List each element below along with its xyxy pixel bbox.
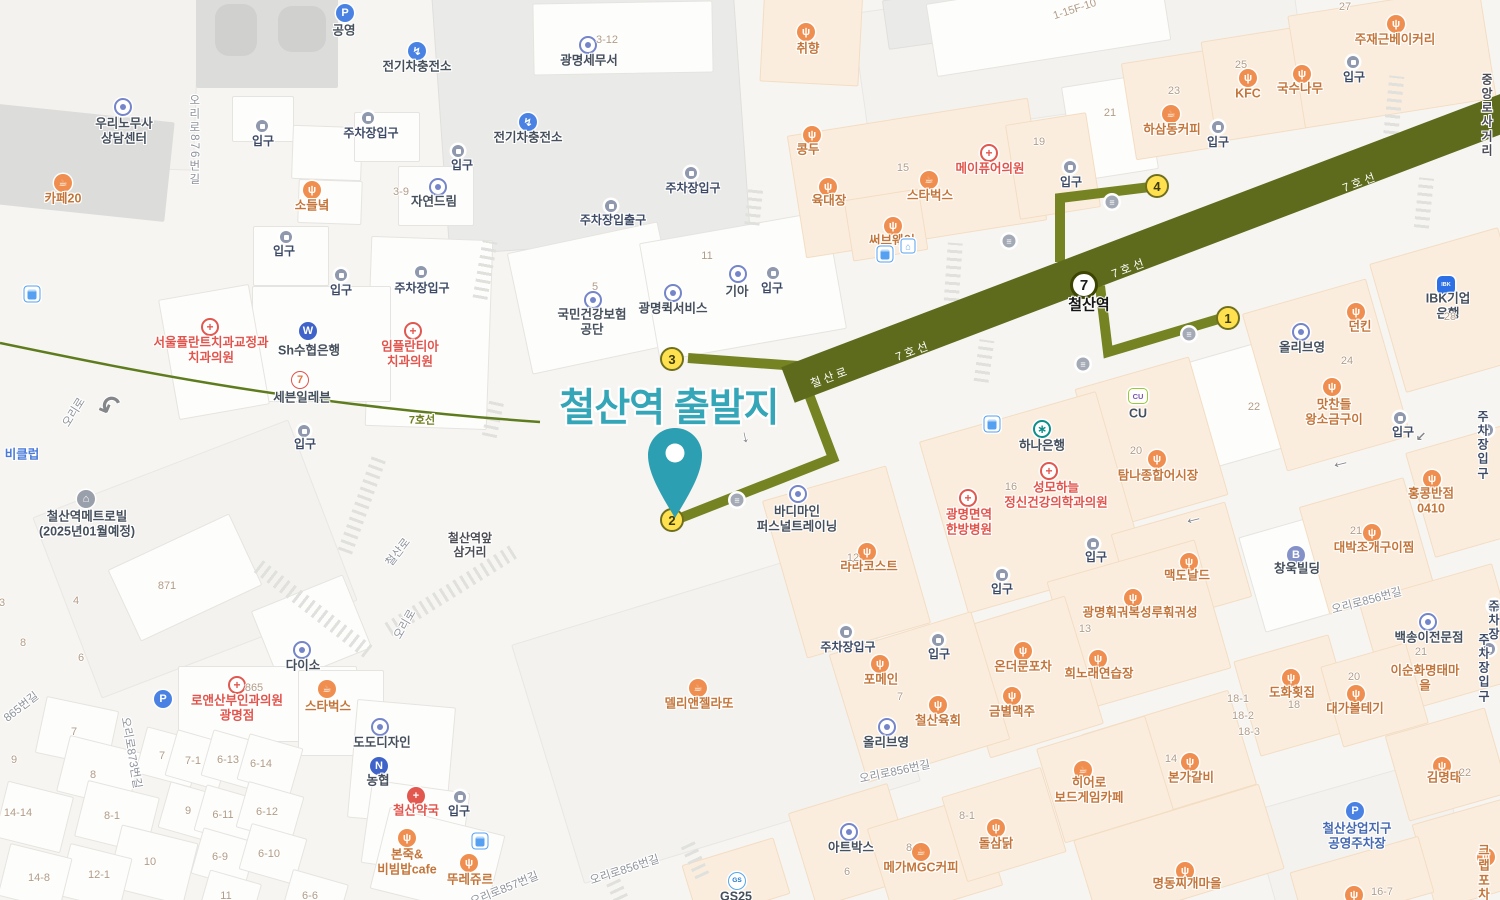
food-icon[interactable]: ψ bbox=[1148, 450, 1166, 468]
entrance-label: 입구 bbox=[294, 437, 316, 451]
poi-label[interactable]: 전기차충전소 bbox=[382, 60, 451, 75]
lot-number: 16-7 bbox=[1371, 886, 1393, 898]
poi-label[interactable]: 광명훠궈복성루훠궈성 bbox=[1082, 606, 1197, 621]
lot-number: 14-8 bbox=[28, 872, 50, 884]
med-icon[interactable]: + bbox=[1040, 462, 1058, 480]
building bbox=[215, 4, 257, 56]
poi-label[interactable]: GS25 bbox=[720, 890, 752, 900]
line7-band-label: 7호선 bbox=[1340, 168, 1380, 196]
store-icon[interactable] bbox=[1419, 613, 1437, 631]
entrance-label: 주차장입구 bbox=[1475, 410, 1492, 481]
park-icon[interactable]: P bbox=[1346, 802, 1364, 820]
lot-number: 7 bbox=[159, 750, 165, 762]
lot-number: 11 bbox=[701, 250, 712, 262]
poi-label[interactable]: 금별맥주 bbox=[989, 705, 1035, 720]
lot-number: 6-10 bbox=[258, 848, 280, 860]
bank-icon[interactable]: N bbox=[370, 757, 388, 775]
cafe-icon[interactable]: ☕ bbox=[1162, 105, 1180, 123]
med-icon[interactable]: + bbox=[980, 144, 998, 162]
entrance-icon bbox=[1063, 160, 1077, 174]
poi-label[interactable]: 던킨 bbox=[1348, 320, 1371, 335]
lot-number: 9 bbox=[185, 805, 191, 817]
gs-icon[interactable]: GS bbox=[728, 872, 746, 890]
hana-icon[interactable]: ∗ bbox=[1033, 420, 1051, 438]
lot-number: 28 bbox=[1444, 311, 1456, 323]
lot-number: 21 bbox=[1415, 646, 1427, 658]
food-icon[interactable]: ψ bbox=[1282, 669, 1300, 687]
building bbox=[278, 6, 326, 52]
food-icon[interactable]: ψ bbox=[303, 181, 321, 199]
poi-label[interactable]: 광명세무서 bbox=[560, 54, 618, 69]
entrance-label: 입구 bbox=[1085, 550, 1107, 564]
poi-label[interactable]: 포메인 bbox=[864, 673, 899, 688]
entrance-icon bbox=[766, 266, 780, 280]
poi-label[interactable]: 카페20 bbox=[45, 192, 82, 207]
poi-label[interactable]: 메이퓨어의원 bbox=[955, 162, 1024, 177]
food-icon[interactable]: ψ bbox=[1345, 886, 1363, 900]
entrance-icon bbox=[279, 230, 293, 244]
lot-number: 18 bbox=[1288, 699, 1300, 711]
med-icon[interactable]: + bbox=[404, 322, 422, 340]
poi-label[interactable]: 자연드림 bbox=[411, 195, 457, 210]
food-icon[interactable]: ψ bbox=[1181, 753, 1199, 771]
entrance-icon bbox=[361, 111, 375, 125]
line7-exit-branch bbox=[688, 358, 798, 366]
bus-stop-icon[interactable] bbox=[24, 286, 41, 303]
poi-label[interactable]: 홍콩반점 0410 bbox=[1408, 486, 1454, 516]
lot-number: 25 bbox=[1235, 59, 1247, 71]
poi-label[interactable]: 크랩포차 bbox=[1476, 844, 1492, 900]
lot-number: 8 bbox=[906, 842, 912, 854]
poi-label[interactable]: KFC bbox=[1235, 87, 1261, 102]
crosswalk bbox=[744, 184, 763, 225]
entrance-label: 입구 bbox=[991, 582, 1013, 596]
entrance-label: 주차장 bbox=[1488, 599, 1499, 641]
entrance-label: 입구 bbox=[273, 244, 295, 258]
poi-label[interactable]: 희노래연습장 bbox=[1064, 667, 1133, 682]
store-icon[interactable] bbox=[293, 641, 311, 659]
entrance-icon bbox=[1393, 411, 1407, 425]
lot-number: 6 bbox=[844, 866, 850, 878]
food-icon[interactable]: ψ bbox=[1124, 589, 1142, 607]
lot-number: 6-14 bbox=[250, 758, 272, 770]
poi-label[interactable]: 도도디자인 bbox=[353, 736, 411, 751]
cafe-icon[interactable]: ☕ bbox=[689, 679, 707, 697]
entrance-icon bbox=[1086, 537, 1100, 551]
cafe-icon[interactable]: ☕ bbox=[54, 174, 72, 192]
food-icon[interactable]: ψ bbox=[1014, 642, 1032, 660]
med-icon[interactable]: + bbox=[201, 318, 219, 336]
lot-number: 21 bbox=[1104, 107, 1116, 119]
subway-exit-2[interactable]: 2 bbox=[660, 508, 684, 532]
food-icon[interactable]: ψ bbox=[1089, 650, 1107, 668]
poi-label[interactable]: 스타벅스 bbox=[305, 700, 351, 715]
poi-label[interactable]: 성모하늘 정신건강의학과의원 bbox=[1004, 480, 1108, 510]
lot-number: 3-9 bbox=[393, 186, 409, 198]
lot-number: 6-12 bbox=[256, 806, 278, 818]
food-icon[interactable]: ψ bbox=[1003, 687, 1021, 705]
poi-label[interactable]: 철산상업지구 공영주차장 bbox=[1322, 821, 1391, 851]
poi-label[interactable]: 서울플란트치과교정과 치과의원 bbox=[153, 335, 268, 365]
entrance-label: 입구 bbox=[451, 158, 473, 172]
lot-number: 871 bbox=[158, 580, 176, 592]
cafe-icon[interactable]: ☕ bbox=[920, 171, 938, 189]
park-icon[interactable]: P bbox=[336, 4, 354, 22]
poi-label[interactable]: 우리노무사 상담센터 bbox=[95, 116, 153, 146]
poi-label[interactable]: 철산역메트로빌 (2025년01월예정) bbox=[39, 509, 135, 539]
lodge-icon[interactable]: ⌂ bbox=[901, 239, 916, 254]
poi-label[interactable]: 명동찌개마을 bbox=[1152, 877, 1221, 892]
entrance-icon bbox=[451, 144, 465, 158]
ev-icon[interactable]: ↯ bbox=[408, 42, 426, 60]
food-icon[interactable]: ψ bbox=[1347, 685, 1365, 703]
direction-arrow-icon: ↙ bbox=[1416, 429, 1427, 445]
lot-number: 14 bbox=[1165, 753, 1177, 765]
poi-label[interactable]: 창욱빌딩 bbox=[1274, 562, 1320, 577]
poi-label[interactable]: 철산육회 bbox=[915, 714, 961, 729]
entrance-label: 주차장입구 bbox=[394, 281, 449, 295]
lot-number: 16 bbox=[1005, 481, 1017, 493]
entrance-label: 입구 bbox=[448, 804, 470, 818]
lot-number: 7-1 bbox=[185, 755, 201, 767]
poi-label[interactable]: 백송이전문점 bbox=[1394, 631, 1463, 646]
lot-number: 20 bbox=[1348, 671, 1360, 683]
food-icon[interactable]: ψ bbox=[1323, 378, 1341, 396]
bus-stop-icon[interactable] bbox=[877, 246, 894, 263]
food-icon[interactable]: ψ bbox=[797, 23, 815, 41]
lot-number: 11 bbox=[220, 890, 231, 900]
street-label: 오리로 bbox=[61, 396, 89, 430]
street-label: 오리로876번길 bbox=[186, 94, 200, 187]
food-icon[interactable]: ψ bbox=[871, 655, 889, 673]
poi-label[interactable]: 콩두 bbox=[796, 143, 819, 158]
poi-label[interactable]: 대가볼테기 bbox=[1326, 702, 1384, 717]
poi-label[interactable]: 올리브영 bbox=[1279, 341, 1325, 356]
store-icon[interactable] bbox=[878, 718, 896, 736]
lot-number: 22 bbox=[1459, 767, 1471, 779]
line7-band-label: 7호선 bbox=[1109, 254, 1149, 282]
poi-label[interactable]: CU bbox=[1129, 407, 1147, 422]
entrance-icon bbox=[839, 625, 853, 639]
poi-label[interactable]: 기아 bbox=[725, 285, 748, 300]
poi-label[interactable]: 탐나종합어시장 bbox=[1118, 469, 1199, 484]
store-icon[interactable] bbox=[371, 718, 389, 736]
poi-label[interactable]: Sh수협은행 bbox=[278, 344, 340, 359]
food-icon[interactable]: ψ bbox=[1387, 15, 1405, 33]
subway-entrance-stairs-icon: ≡ bbox=[1105, 195, 1120, 210]
lot-number: 865 bbox=[245, 682, 263, 694]
entrance-icon bbox=[255, 119, 269, 133]
crosswalk bbox=[1414, 177, 1434, 228]
entrance-icon bbox=[1211, 120, 1225, 134]
food-icon[interactable]: ψ bbox=[858, 543, 876, 561]
poi-label[interactable]: 전기차충전소 bbox=[493, 131, 562, 146]
food-icon[interactable]: ψ bbox=[460, 854, 478, 872]
poi-label[interactable]: 델리앤젤라또 bbox=[664, 697, 733, 712]
lot-number: 23 bbox=[1168, 85, 1180, 97]
poi-label[interactable]: 본죽& 비빔밥cafe bbox=[377, 847, 437, 877]
med-icon[interactable]: + bbox=[959, 489, 977, 507]
poi-label[interactable]: 육대장 bbox=[812, 194, 847, 209]
store-icon[interactable] bbox=[664, 284, 682, 302]
lot-number: 18-2 bbox=[1232, 710, 1254, 722]
entrance-label: 입구 bbox=[1392, 425, 1414, 439]
subway-exit-4[interactable]: 4 bbox=[1145, 174, 1169, 198]
poi-label[interactable]: 온더문포차 bbox=[994, 660, 1052, 675]
crosswalk bbox=[943, 243, 963, 310]
poi-label[interactable]: 주재근베이커리 bbox=[1355, 33, 1436, 48]
street-label: 7호선 bbox=[409, 415, 435, 428]
lot-number: 3-12 bbox=[596, 34, 618, 46]
store-icon[interactable] bbox=[1292, 323, 1310, 341]
lot-number: 6-13 bbox=[217, 754, 239, 766]
poi-label[interactable]: 광명면역 한방병원 bbox=[946, 507, 992, 537]
lot-number: 18-3 bbox=[1238, 726, 1260, 738]
poi-label[interactable]: 뚜레쥬르 bbox=[447, 873, 493, 888]
poi-label[interactable]: 로앤산부인과의원 광명점 bbox=[191, 693, 283, 723]
entrance-label: 주차장입구 bbox=[820, 640, 875, 654]
departure-title: 철산역 출발지 bbox=[559, 377, 778, 433]
poi-label[interactable]: 하나은행 bbox=[1019, 439, 1065, 454]
food-icon[interactable]: ψ bbox=[884, 217, 902, 235]
bank-icon[interactable]: W bbox=[299, 322, 317, 340]
subway-entrance-stairs-icon: ≡ bbox=[730, 493, 745, 508]
store-icon[interactable] bbox=[429, 178, 447, 196]
poi-label[interactable]: 아트박스 bbox=[828, 841, 874, 856]
entrance-icon bbox=[604, 199, 618, 213]
poi-label[interactable]: 비클럽 bbox=[5, 448, 40, 463]
store-icon[interactable] bbox=[579, 36, 597, 54]
ev-icon[interactable]: ↯ bbox=[519, 113, 537, 131]
poi-label[interactable]: 공영 bbox=[332, 24, 355, 39]
lot-number: 13 bbox=[1079, 623, 1091, 635]
entrance-label: 입구 bbox=[928, 647, 950, 661]
poi-label[interactable]: 다이소 bbox=[286, 659, 321, 674]
food-icon[interactable]: ψ bbox=[1347, 303, 1365, 321]
lot-number: 6-9 bbox=[212, 851, 228, 863]
food-icon[interactable]: ψ bbox=[398, 829, 416, 847]
lot-number: 18-1 bbox=[1227, 693, 1249, 705]
lot-number: 8 bbox=[20, 637, 26, 649]
food-icon[interactable]: ψ bbox=[987, 819, 1005, 837]
lot-number: 20 bbox=[1130, 445, 1142, 457]
store-icon[interactable] bbox=[729, 265, 747, 283]
line7-band-label: 철산로 bbox=[808, 363, 852, 392]
lot-number: 4 bbox=[73, 595, 79, 607]
entrance-label: 주차장입구 bbox=[1476, 633, 1492, 704]
entrance-icon bbox=[453, 790, 467, 804]
entrance-label: 입구 bbox=[330, 283, 352, 297]
store-icon[interactable] bbox=[840, 823, 858, 841]
lot-number: 5 bbox=[592, 281, 598, 293]
lot-number: 8-1 bbox=[104, 810, 120, 822]
pin-shape[interactable] bbox=[648, 428, 702, 518]
street-label: 철산역앞 삼거리 bbox=[448, 531, 492, 559]
poi-label[interactable]: 올리브영 bbox=[863, 736, 909, 751]
seven-icon[interactable]: 7 bbox=[291, 371, 309, 389]
lot-number: 6 bbox=[78, 652, 84, 664]
poi-label[interactable]: 임플란티아 치과의원 bbox=[381, 339, 439, 369]
food-icon[interactable]: ψ bbox=[803, 126, 821, 144]
subway-exit-1[interactable]: 1 bbox=[1216, 306, 1240, 330]
lot-number: 10 bbox=[144, 856, 156, 868]
subway-entrance-stairs-icon: ≡ bbox=[1002, 234, 1017, 249]
street-label: 중앙로 사거리 bbox=[1481, 73, 1494, 158]
poi-label[interactable]: 김명태 bbox=[1427, 771, 1462, 786]
direction-arrow-icon: ↶ bbox=[93, 387, 127, 426]
bus-stop-icon[interactable] bbox=[472, 833, 489, 850]
entrance-icon bbox=[995, 568, 1009, 582]
lot-number: 8-1 bbox=[959, 810, 975, 822]
poi-label[interactable]: 맛찬들 왕소금구이 bbox=[1305, 397, 1363, 427]
poi-label[interactable]: 국민건강보험 공단 bbox=[557, 307, 626, 337]
entrance-label: 입구 bbox=[1207, 135, 1229, 149]
cafe-icon[interactable]: ☕ bbox=[318, 680, 336, 698]
lot-number: 12-1 bbox=[88, 869, 110, 881]
poi-label[interactable]: 국수나무 bbox=[1277, 82, 1323, 97]
street-label: 철산로 bbox=[384, 536, 414, 569]
lot-number: 27 bbox=[1339, 1, 1351, 13]
poi-label[interactable]: 맥도날드 bbox=[1164, 569, 1210, 584]
poi-label[interactable]: 메가MGC커피 bbox=[883, 861, 958, 876]
entrance-icon bbox=[684, 166, 698, 180]
poi-label[interactable]: 본가갈비 bbox=[1168, 771, 1214, 786]
entrance-icon bbox=[414, 265, 428, 279]
poi-label[interactable]: 광명퀵서비스 bbox=[638, 302, 707, 317]
poi-label[interactable]: 히어로 보드게임카페 bbox=[1054, 775, 1123, 805]
park-icon[interactable]: P bbox=[154, 690, 172, 708]
entrance-icon bbox=[334, 268, 348, 282]
food-icon[interactable]: ψ bbox=[929, 696, 947, 714]
crosswalk bbox=[338, 455, 386, 554]
store-icon[interactable] bbox=[789, 485, 807, 503]
cafe-icon[interactable]: ☕ bbox=[912, 843, 930, 861]
lot-number: 3 bbox=[0, 597, 5, 609]
lot-number: 22 bbox=[1248, 401, 1260, 413]
lot-number: 14-14 bbox=[4, 807, 32, 819]
lot-number: 15 bbox=[897, 162, 909, 174]
lot-number: 21 bbox=[1350, 525, 1362, 537]
lot-number: 6-11 bbox=[212, 809, 233, 821]
poi-label[interactable]: 스타벅스 bbox=[907, 189, 953, 204]
poi-label[interactable]: 이순화명태마을 bbox=[1388, 663, 1463, 693]
food-icon[interactable]: ψ bbox=[1239, 69, 1257, 87]
poi-label[interactable]: 소들녘 bbox=[295, 199, 330, 214]
entrance-icon bbox=[931, 633, 945, 647]
lot-number: 9 bbox=[11, 754, 17, 766]
street-label: 865번길 bbox=[2, 690, 42, 726]
station-name: 철산역 bbox=[1068, 294, 1109, 315]
poi-label[interactable]: 하삼동커피 bbox=[1143, 123, 1201, 138]
line7-exit-branch bbox=[1100, 286, 1222, 352]
map-canvas[interactable]: P공영우리노무사 상담센터☕카페20↯전기차충전소↯전기차충전소광명세무서자연드… bbox=[0, 0, 1500, 900]
bus-stop-icon[interactable] bbox=[984, 416, 1001, 433]
pin-center-dot bbox=[666, 444, 685, 463]
food-icon[interactable]: ψ bbox=[1363, 524, 1381, 542]
poi-label[interactable]: 대박조개구이찜 bbox=[1334, 541, 1415, 556]
crosswalk bbox=[974, 339, 995, 383]
med-icon[interactable]: + bbox=[228, 676, 246, 694]
entrance-label: 입구 bbox=[252, 134, 274, 148]
lot-number: 12 bbox=[847, 552, 859, 564]
lot-number: 7 bbox=[71, 726, 77, 738]
subway-exit-3[interactable]: 3 bbox=[660, 347, 684, 371]
subway-entrance-stairs-icon: ≡ bbox=[1182, 327, 1197, 342]
poi-label[interactable]: 세븐일레븐 bbox=[273, 391, 331, 406]
lot-number: 8 bbox=[90, 769, 96, 781]
lot-number: 7 bbox=[897, 691, 903, 703]
entrance-label: 주차장입구 bbox=[343, 126, 398, 140]
food-icon[interactable]: ψ bbox=[1293, 65, 1311, 83]
entrance-label: 주차장입출구 bbox=[580, 213, 646, 227]
lot-number: 6-6 bbox=[302, 890, 318, 900]
poi-label[interactable]: 취향 bbox=[796, 42, 819, 57]
entrance-label: 입구 bbox=[1060, 175, 1082, 189]
entrance-label: 주차장입구 bbox=[665, 181, 720, 195]
pharm-icon[interactable]: + bbox=[407, 787, 425, 805]
home-icon[interactable]: ⌂ bbox=[77, 490, 95, 508]
lot-number: 19 bbox=[1033, 136, 1045, 148]
store-icon[interactable] bbox=[114, 98, 132, 116]
poi-label[interactable]: 돌삼닭 bbox=[979, 837, 1014, 852]
lot-number: 24 bbox=[1341, 355, 1353, 367]
entrance-icon bbox=[1346, 55, 1360, 69]
cu-icon[interactable]: CU bbox=[1128, 388, 1148, 404]
entrance-icon bbox=[297, 424, 311, 438]
poi-label[interactable]: 농협 bbox=[366, 774, 389, 789]
poi-label[interactable]: 바디마인 퍼스널트레이닝 bbox=[757, 504, 838, 534]
line7-band-label: 7호선 bbox=[893, 337, 933, 365]
entrance-label: 입구 bbox=[1343, 70, 1365, 84]
entrance-label: 입구 bbox=[761, 281, 783, 295]
subway-entrance-stairs-icon: ≡ bbox=[1076, 357, 1091, 372]
poi-label[interactable]: 철산약국 bbox=[393, 804, 439, 819]
